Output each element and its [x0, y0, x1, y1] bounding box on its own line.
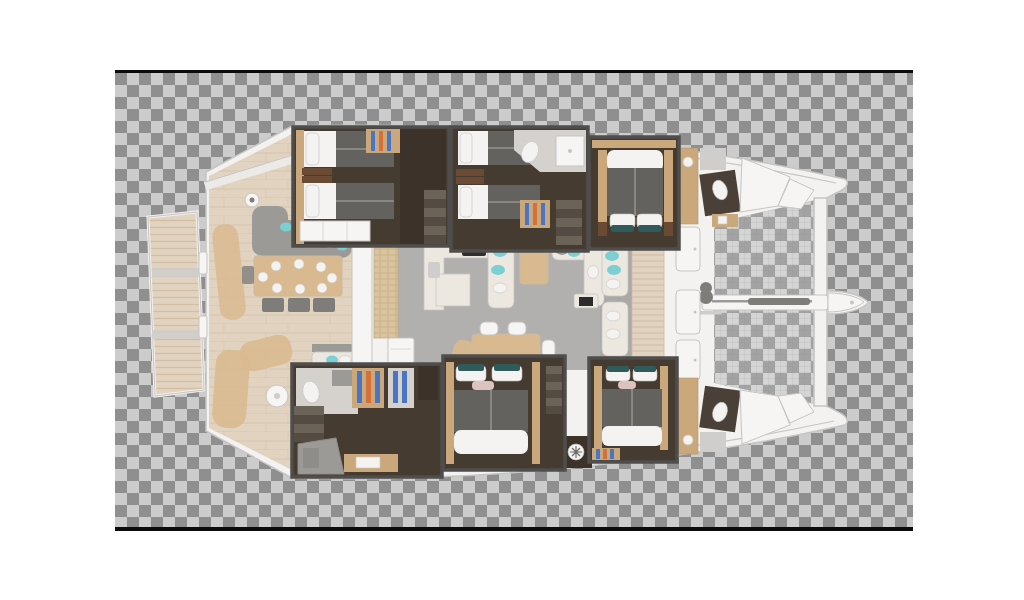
stairs [424, 190, 446, 244]
double-bed [454, 364, 530, 456]
stool [313, 298, 335, 312]
stool [288, 298, 310, 312]
galley-island [436, 274, 470, 306]
wardrobe [520, 200, 550, 228]
nightstand [456, 177, 484, 184]
nightstand [598, 222, 607, 236]
coffee-table [520, 250, 548, 284]
anchor-channel [748, 298, 810, 305]
sink [683, 435, 693, 445]
top-frame-line [115, 70, 913, 73]
vanity [344, 454, 398, 472]
twin-bed [304, 183, 394, 219]
port-forward-cabin [589, 358, 677, 462]
starboard-mid-cabin [451, 127, 588, 251]
nightstand [302, 176, 332, 183]
swim-platform [148, 212, 204, 396]
rattan-aft-lounger [374, 242, 398, 338]
bottom-frame-line [115, 527, 913, 531]
rattan-sunpad [632, 250, 664, 358]
chair [480, 322, 498, 335]
sink [356, 457, 380, 468]
stairs [294, 406, 324, 442]
tablet [579, 297, 593, 306]
dresser [300, 221, 370, 241]
saloon-aft-door [352, 238, 372, 368]
starboard-forward-cabin [589, 137, 679, 249]
shower-unit [298, 438, 344, 474]
transom-step [199, 252, 207, 274]
stairs [546, 366, 562, 414]
chair [508, 322, 526, 335]
double-bed [607, 150, 663, 232]
port-mid-cabin [443, 356, 565, 470]
nightstand [664, 222, 673, 236]
wardrobe [366, 129, 400, 153]
platform-step-strip [152, 268, 200, 277]
nightstand [302, 168, 332, 175]
floorplan-figure [0, 0, 1024, 600]
accent-pillow [472, 381, 494, 390]
platform-step-strip [152, 330, 200, 339]
mast-base [700, 282, 712, 294]
stairs [556, 200, 582, 245]
nightstand [456, 169, 484, 176]
wardrobe [592, 448, 620, 460]
sink [683, 157, 693, 167]
port-aft-bathroom [292, 364, 442, 477]
starboard-aft-cabin [293, 127, 449, 246]
wardrobe [352, 368, 384, 408]
accent-pillow [618, 381, 636, 389]
galley-sink [428, 262, 440, 278]
stool [262, 298, 284, 312]
screenshot-root [0, 0, 1024, 600]
wardrobe [388, 368, 414, 408]
transom-step [199, 316, 207, 338]
